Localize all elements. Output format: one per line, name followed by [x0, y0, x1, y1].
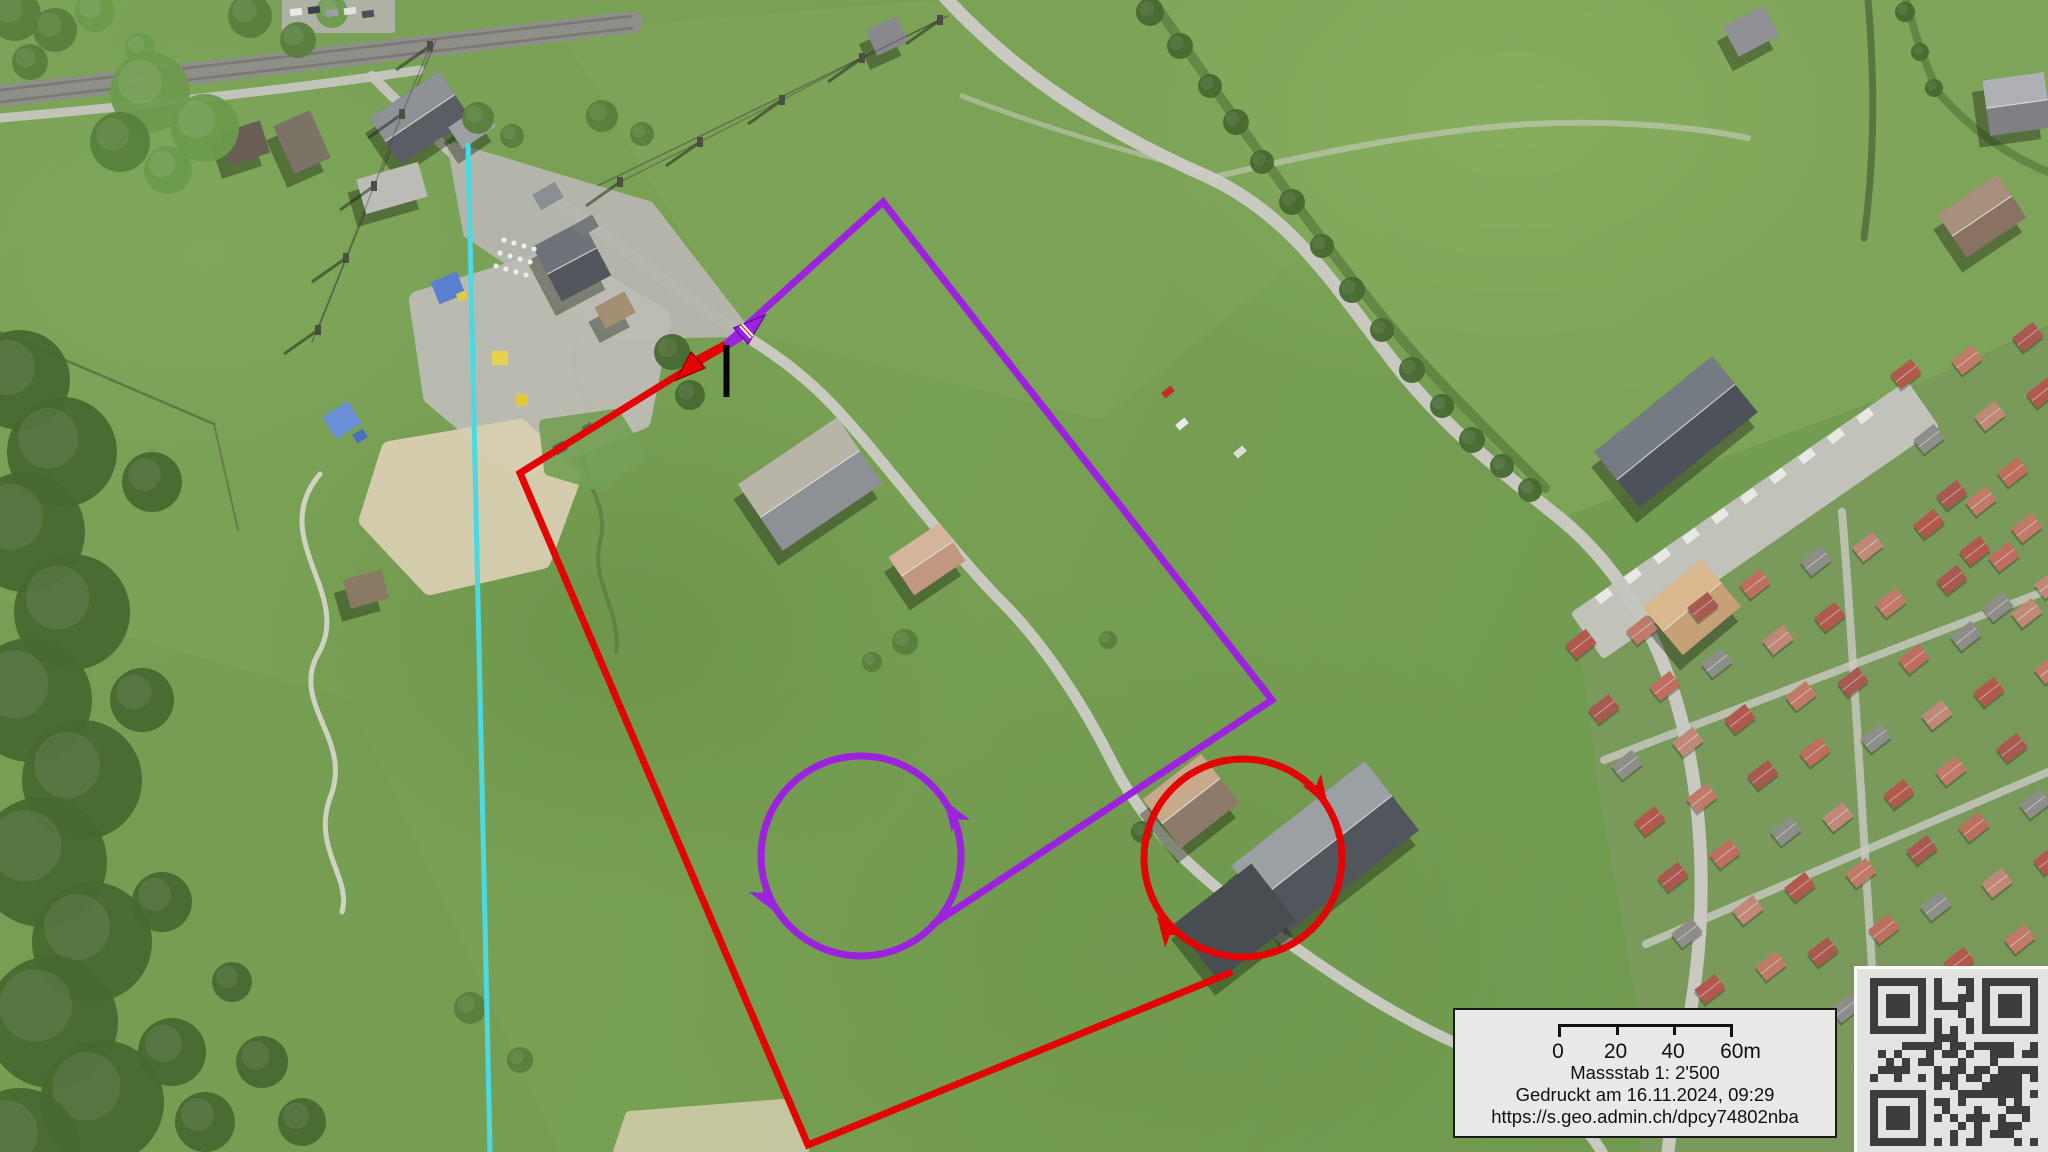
cyan-measurement-line [468, 143, 490, 1152]
scale-bar: 0204060m [1558, 1024, 1733, 1039]
purple-area-outline [727, 202, 1272, 925]
scale-tick-label: 40 [1661, 1040, 1684, 1064]
red-area-outline [520, 345, 1232, 1145]
red-direction-arrow-marker [676, 345, 726, 380]
map-annotations [0, 0, 2048, 1152]
share-url-label: https://s.geo.admin.ch/dpcy74802nba [1455, 1106, 1835, 1128]
qr-code-icon [1854, 966, 2048, 1152]
purple-rotation-circle [749, 756, 970, 956]
scale-box: 0204060m Massstab 1: 2'500 Gedruckt am 1… [1453, 1008, 1837, 1138]
purple-direction-arrow-marker [726, 315, 765, 345]
scale-tick-label: 0 [1552, 1040, 1564, 1064]
scale-tick [1616, 1027, 1619, 1035]
print-date-label: Gedruckt am 16.11.2024, 09:29 [1455, 1084, 1835, 1106]
scale-tick-label: 60m [1720, 1040, 1761, 1064]
scale-tick [1558, 1027, 1561, 1037]
scale-tick [1673, 1027, 1676, 1035]
red-rotation-circle [1144, 759, 1342, 957]
scale-tick-label: 20 [1604, 1040, 1627, 1064]
aerial-map[interactable]: 0204060m Massstab 1: 2'500 Gedruckt am 1… [0, 0, 2048, 1152]
scale-tick [1730, 1027, 1733, 1037]
map-scale-label: Massstab 1: 2'500 [1455, 1062, 1835, 1084]
